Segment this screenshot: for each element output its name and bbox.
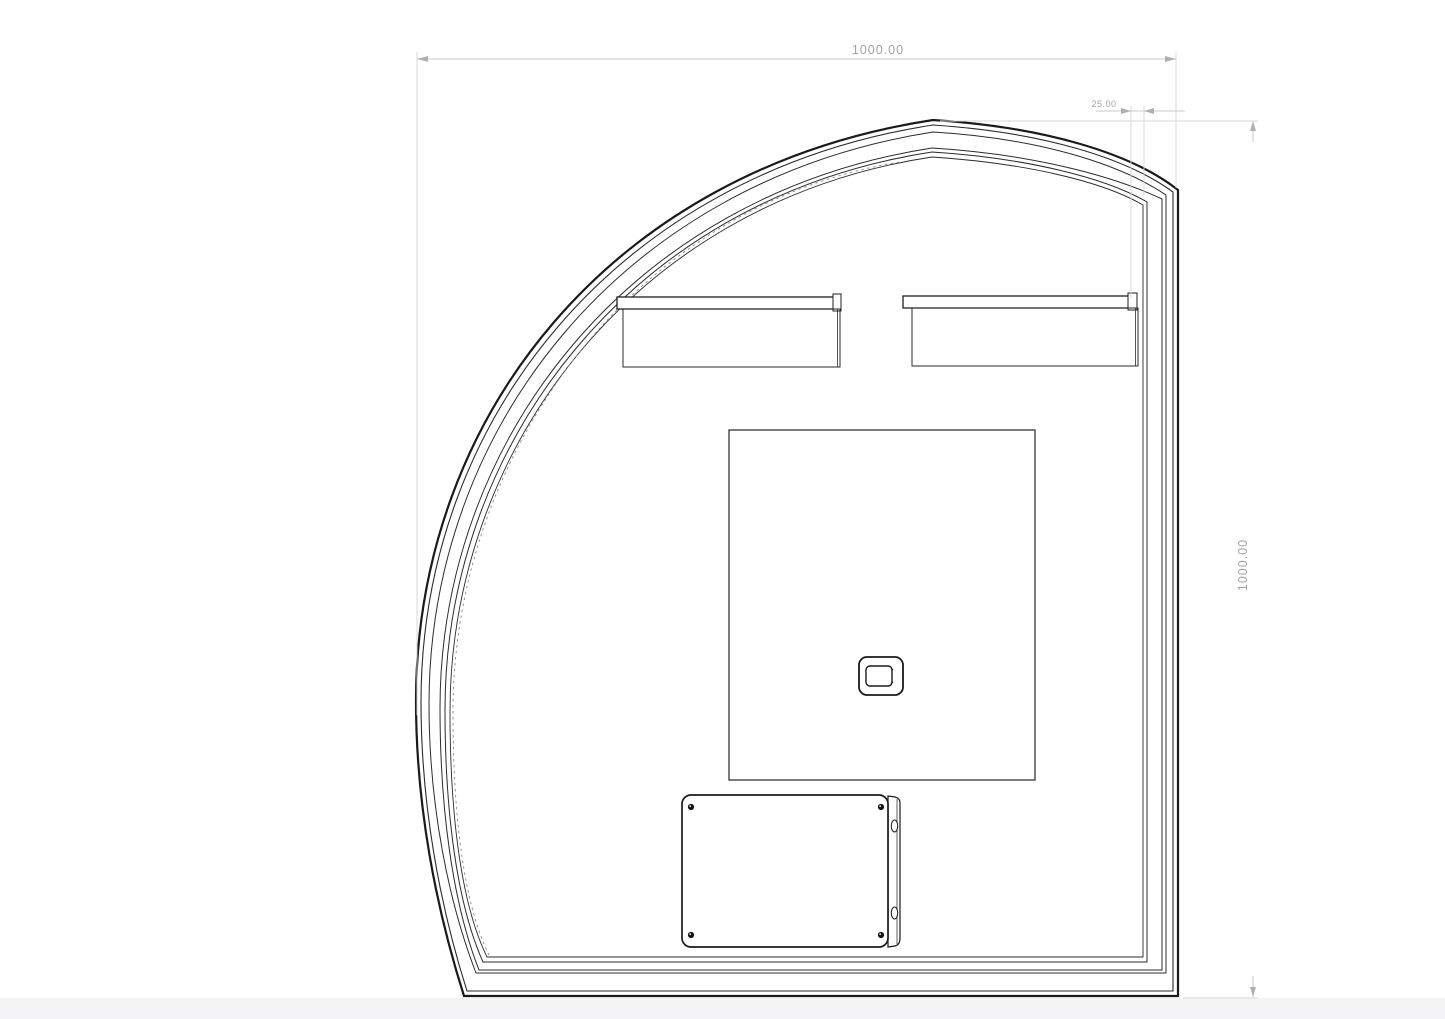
arrowhead-right [1144,108,1154,114]
screw-highlight [689,805,691,807]
cad-drawing-canvas[interactable]: 1000.00 25.00 1000.00 [0,0,1445,1019]
arrowhead-bottom [1250,987,1256,997]
side-slot-top [891,820,897,832]
right-shelf-rail [903,296,1133,308]
right-shelf-box [912,308,1138,366]
screw-bottom-right [878,932,884,938]
interior-components [617,293,1138,947]
arrowhead-right [1165,56,1176,62]
mounting-plate-face [682,795,888,947]
right-shelf [903,293,1138,366]
screw-highlight [689,933,691,935]
left-shelf [617,294,841,367]
screw-bottom-left [688,932,694,938]
right-shelf-rail-lip [1128,293,1137,310]
left-shelf-box [623,309,840,367]
screw-highlight [879,933,881,935]
connector-inner [866,666,892,686]
arrowhead-left [1121,108,1131,114]
side-slot-bottom [891,907,897,919]
mounting-plate [682,795,900,947]
right-height-dimension-label: 1000.00 [1236,539,1250,591]
cad-viewport[interactable]: 1000.00 25.00 1000.00 [0,0,1445,1019]
screw-highlight [879,805,881,807]
wall-thickness-dimension: 25.00 [1091,99,1185,298]
arrowhead-left [417,56,428,62]
arrowhead-top [1250,121,1256,131]
top-width-dimension-label: 1000.00 [852,43,904,57]
screw-top-right [878,804,884,810]
footer-strip [0,998,1445,1019]
wall-thickness-dimension-label: 25.00 [1091,99,1116,109]
screw-top-left [688,804,694,810]
mounting-plate-side [888,796,900,947]
left-shelf-rail [617,297,838,309]
left-shelf-rail-lip [833,294,841,311]
connector-detail [859,657,903,695]
center-panel [729,430,1035,780]
